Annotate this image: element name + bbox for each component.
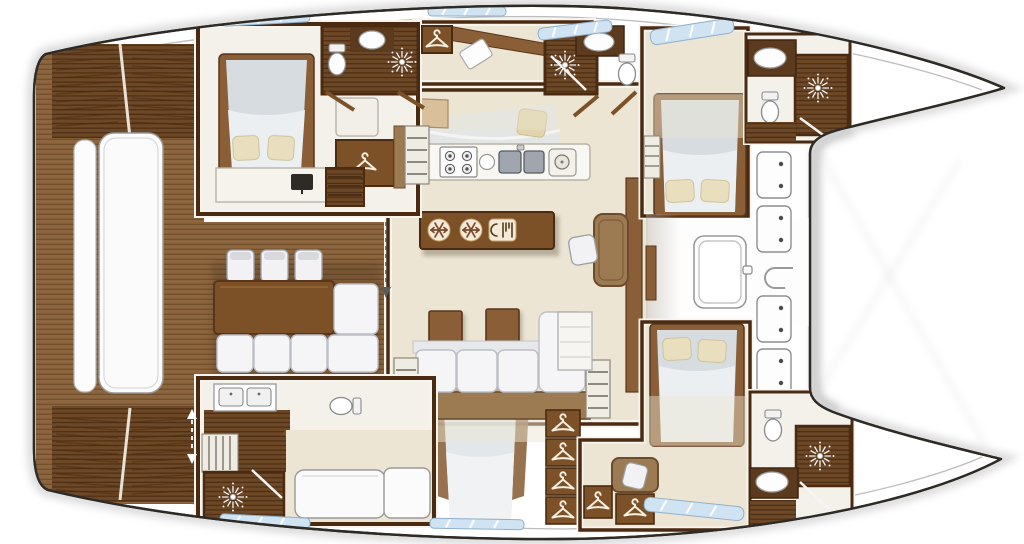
bow-notch-shadow: [816, 131, 985, 445]
toilet-icon: [330, 398, 361, 415]
sofa-cushion: [254, 335, 290, 372]
sink-icon: [756, 472, 788, 492]
cabinet-body: [558, 312, 592, 370]
starboard-aft-cabin: [286, 430, 432, 522]
sofa-cushion: [498, 350, 538, 392]
toilet-icon: [765, 410, 782, 441]
faucet-dot: [230, 393, 233, 396]
seat: [384, 468, 430, 518]
chair-back: [264, 252, 285, 260]
tv-icon: [291, 174, 313, 190]
pillow: [665, 179, 694, 202]
bathroom-floor: [746, 122, 796, 142]
sink-icon: [219, 388, 243, 406]
shower-sunburst-icon: [219, 483, 248, 512]
deck-hatch-icon: [757, 206, 791, 252]
sink-icon: [754, 48, 786, 68]
sofa-cushion: [291, 335, 327, 372]
hull-stairs: [326, 168, 364, 206]
sink-bowl: [524, 151, 544, 173]
pillow: [267, 135, 294, 160]
faucet-dot: [258, 393, 261, 396]
companionway-port-mid: [405, 126, 429, 184]
faucet: [517, 145, 524, 150]
round-sink: [480, 155, 495, 170]
wardrobe: [584, 486, 612, 518]
hull-stairs: [202, 434, 238, 472]
lacing-line: [818, 150, 985, 445]
appliance-dot: [561, 161, 564, 164]
shower-sunburst-icon: [388, 48, 417, 77]
floor-ghost-overlay: [648, 94, 748, 138]
bed-sheet: [446, 452, 514, 522]
galley-closet: [422, 26, 452, 53]
window-strip: [430, 518, 524, 530]
wardrobe-side: [394, 126, 405, 188]
sofa-cushion: [328, 335, 378, 372]
deck-hatch-icon: [757, 349, 791, 395]
pillow: [662, 337, 691, 360]
sofa-cushion: [457, 350, 497, 392]
stair-block: [326, 168, 364, 206]
port-forward-cabin: [642, 28, 748, 216]
toilet-icon: [329, 44, 346, 75]
nav-chair: [568, 234, 598, 266]
wet-bar-island: [420, 212, 559, 256]
toilet-icon: [762, 92, 779, 123]
sink-icon: [584, 33, 614, 51]
chair-back: [230, 252, 251, 260]
swim-platform: [74, 140, 96, 392]
ottoman: [429, 311, 462, 344]
pillow: [697, 339, 726, 362]
hull-stairs: [644, 136, 660, 178]
shower-stall: [796, 426, 850, 486]
deck-hatch-icon: [757, 296, 791, 342]
port-aft-cabin: [198, 24, 429, 214]
floor-ghost-overlay: [424, 96, 590, 130]
toilet-icon: [619, 54, 636, 85]
sink-icon: [359, 31, 385, 49]
sink-bowl: [499, 151, 521, 173]
tv-cabinet: [558, 312, 592, 370]
shower-sunburst-icon: [806, 442, 835, 471]
galley: [424, 144, 590, 180]
shower-sunburst-icon: [551, 51, 580, 80]
lacing-line: [818, 160, 960, 392]
port-forward-bathroom: [746, 34, 850, 142]
dining-table: [214, 281, 334, 334]
single-berth: [295, 470, 385, 518]
ottoman: [486, 309, 519, 342]
shower-stall: [204, 472, 284, 520]
shower-sunburst-icon: [804, 74, 833, 103]
pillow: [700, 179, 729, 202]
chair-back: [298, 252, 319, 260]
sofa-cushion: [334, 284, 378, 334]
floor-plan-svg: [0, 0, 1024, 544]
stove: [440, 147, 477, 177]
sink-icon: [247, 388, 271, 406]
skylight-hatch-icon: [694, 236, 752, 308]
sofa-cushion: [217, 335, 253, 372]
cockpit-chairs: [227, 250, 322, 282]
catamaran-floor-plan: [0, 0, 1024, 544]
deck-hatch-icon: [757, 152, 791, 198]
pillow: [232, 135, 259, 160]
dresser: [216, 168, 332, 202]
floor-ghost-overlay: [646, 396, 748, 446]
starboard-aft-rooms: [187, 378, 434, 524]
sunpad-bench: [99, 133, 163, 393]
deck-box: [646, 246, 656, 300]
